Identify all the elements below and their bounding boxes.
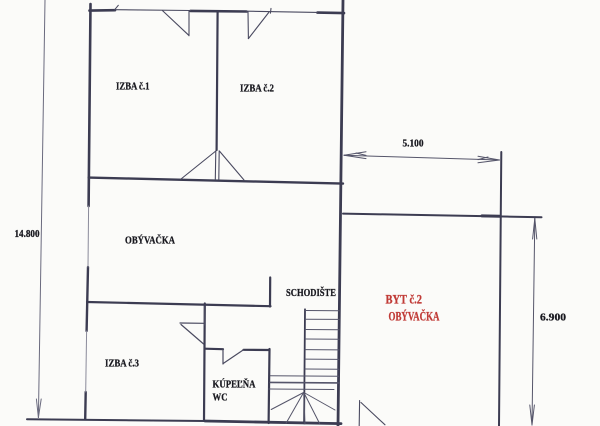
- svg-text:OBÝVAČKA: OBÝVAČKA: [389, 310, 440, 324]
- svg-text:WC: WC: [213, 392, 228, 404]
- svg-text:IZBA č.1: IZBA č.1: [116, 81, 150, 93]
- svg-text:OBÝVAČKA: OBÝVAČKA: [125, 234, 175, 247]
- svg-text:SCHODIŠTE: SCHODIŠTE: [286, 286, 336, 299]
- svg-text:6.900: 6.900: [540, 312, 567, 324]
- svg-text:14.800: 14.800: [15, 228, 40, 240]
- svg-text:BYT č.2: BYT č.2: [386, 293, 423, 307]
- svg-text:IZBA č.2: IZBA č.2: [240, 83, 274, 95]
- svg-text:5.100: 5.100: [403, 138, 424, 150]
- svg-text:KÚPEĽŇA: KÚPEĽŇA: [213, 379, 256, 391]
- svg-text:IZBA č.3: IZBA č.3: [105, 358, 139, 370]
